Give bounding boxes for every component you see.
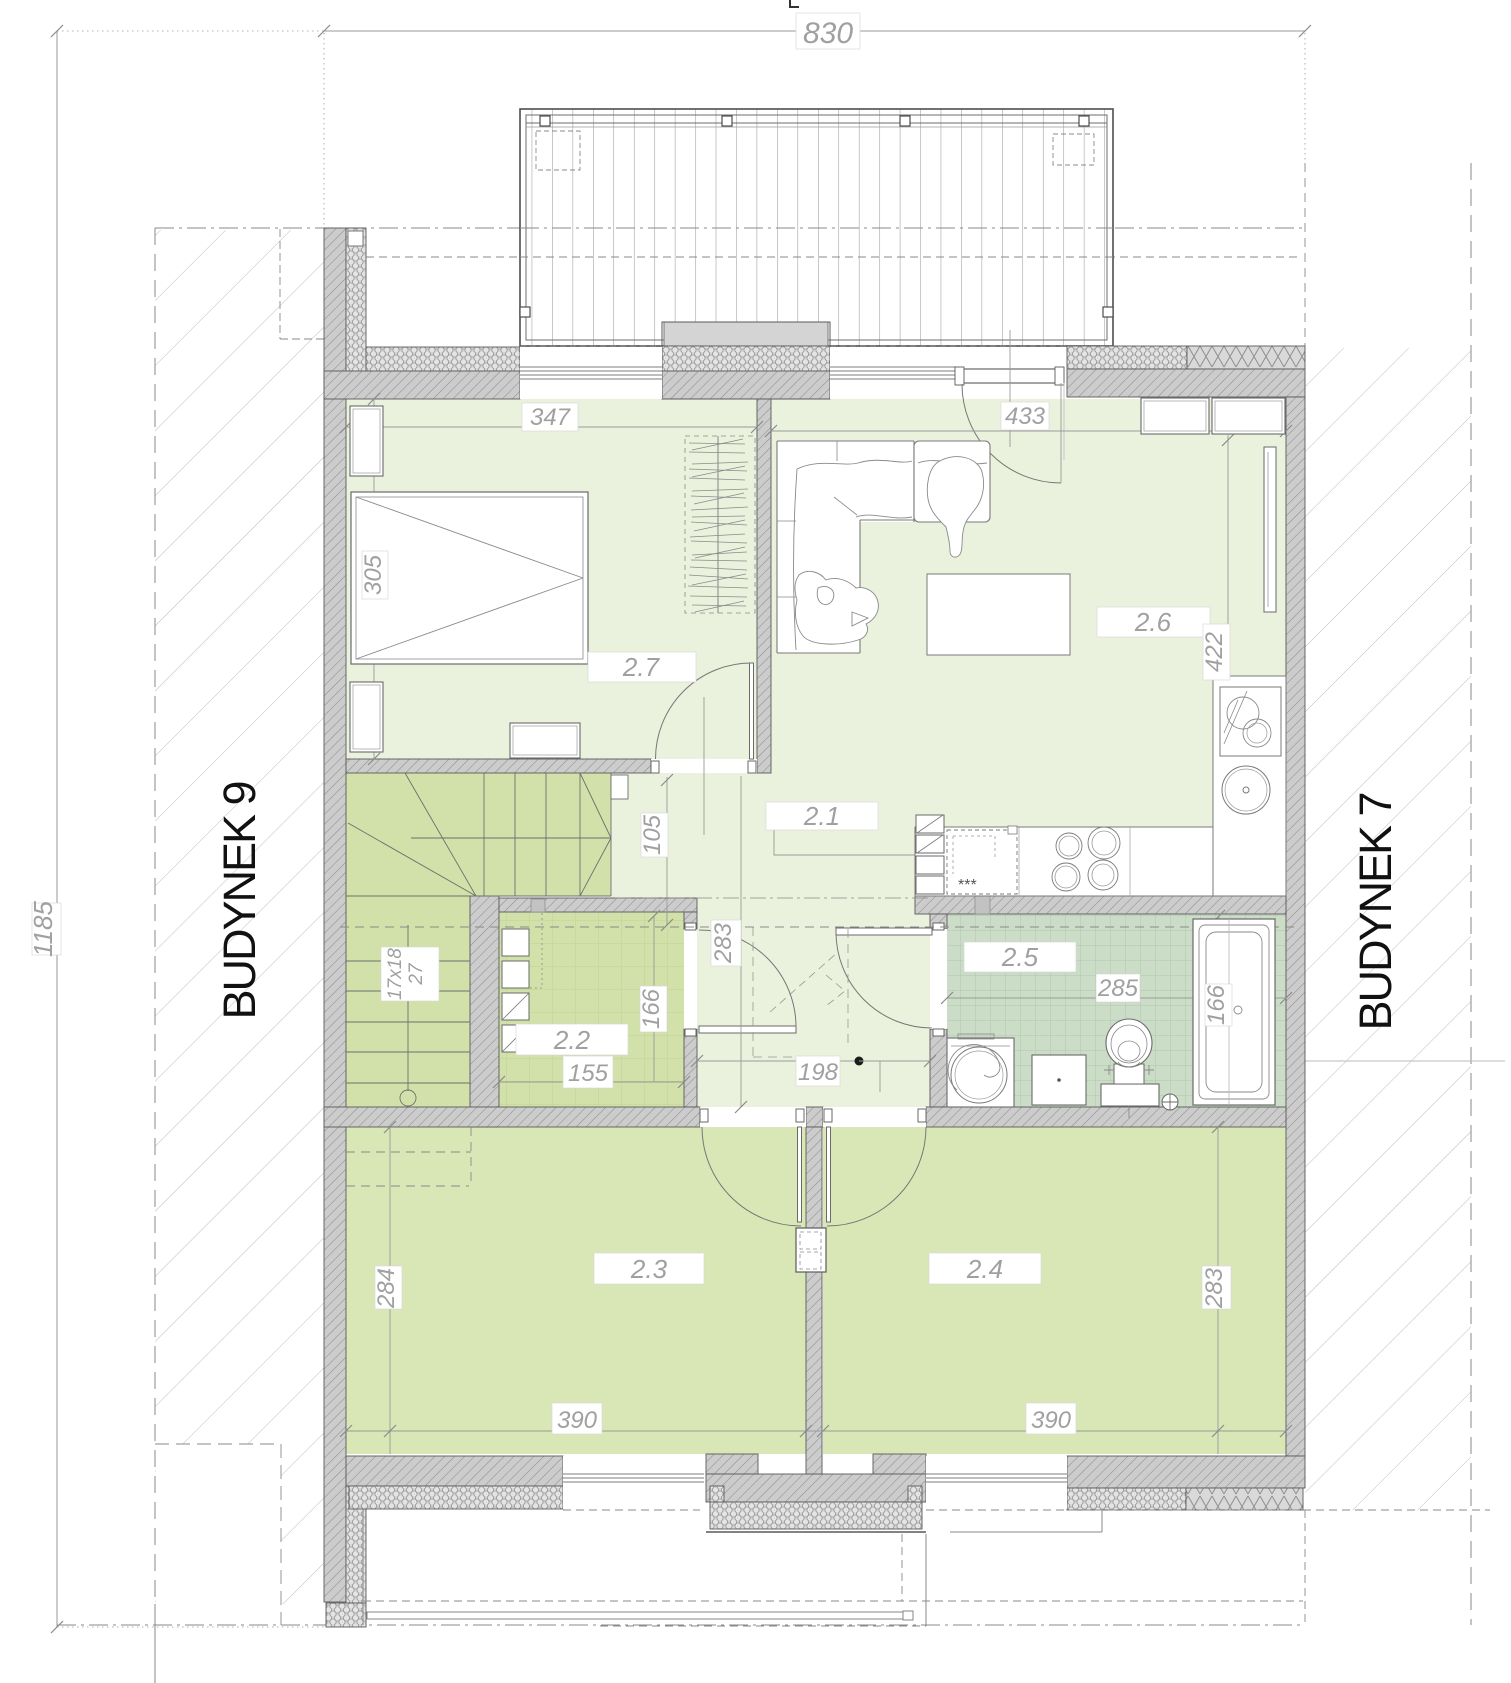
svg-text:2.4: 2.4: [966, 1254, 1003, 1284]
svg-text:2.2: 2.2: [553, 1025, 591, 1055]
svg-text:17x18: 17x18: [385, 948, 406, 1000]
svg-text:1185: 1185: [28, 901, 58, 957]
svg-text:166: 166: [1203, 984, 1230, 1025]
svg-text:155: 155: [568, 1060, 609, 1087]
svg-text:2.7: 2.7: [622, 652, 661, 682]
svg-text:390: 390: [557, 1407, 598, 1434]
svg-text:2.5: 2.5: [1001, 942, 1039, 972]
svg-text:285: 285: [1097, 975, 1139, 1002]
svg-text:422: 422: [1201, 632, 1228, 672]
svg-text:2.3: 2.3: [630, 1254, 668, 1284]
svg-text:2.1: 2.1: [803, 801, 840, 831]
svg-text:105: 105: [639, 814, 666, 855]
svg-text:BUDYNEK 9: BUDYNEK 9: [214, 782, 265, 1019]
svg-text:27: 27: [406, 962, 427, 986]
svg-text:2.6: 2.6: [1134, 607, 1172, 637]
svg-text:166: 166: [638, 988, 665, 1029]
svg-text:284: 284: [373, 1268, 400, 1309]
svg-text:283: 283: [710, 922, 737, 964]
svg-text:***: ***: [958, 877, 977, 894]
svg-text:283: 283: [1201, 1267, 1228, 1309]
svg-text:433: 433: [1005, 403, 1046, 430]
svg-text:198: 198: [798, 1059, 839, 1086]
svg-text:830: 830: [803, 17, 853, 50]
svg-text:347: 347: [530, 404, 572, 431]
svg-text:305: 305: [360, 554, 387, 595]
svg-text:BUDYNEK 7: BUDYNEK 7: [1350, 793, 1401, 1030]
svg-text:390: 390: [1031, 1407, 1072, 1434]
